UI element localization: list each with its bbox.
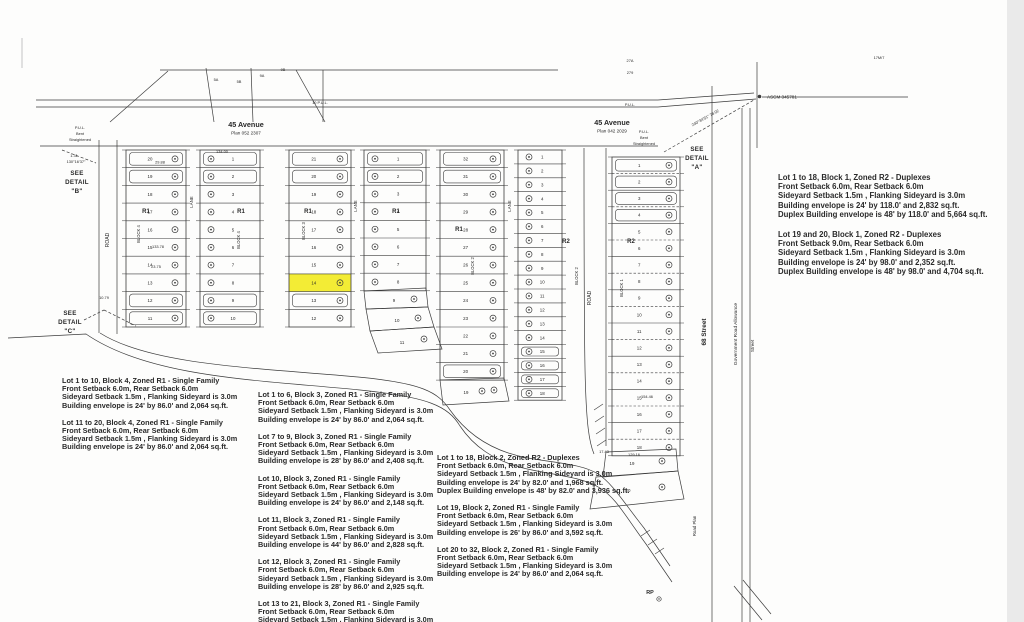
hatch-tick	[596, 428, 605, 434]
survey-marker-dot	[174, 264, 176, 266]
survey-marker-dot	[339, 282, 341, 284]
pul-road-label: P.U.L.	[625, 102, 635, 107]
lot-number: 3	[232, 192, 235, 197]
zoning-note-line: Front Setback 6.0m, Rear Setback 6.0m	[778, 182, 988, 191]
lot-number: 12	[540, 307, 545, 312]
road-line	[296, 70, 325, 122]
see-detail-c-label: SEE	[63, 310, 76, 317]
lot-number: 20	[148, 156, 153, 161]
survey-marker-dot	[413, 298, 415, 300]
road-line	[658, 99, 756, 107]
lot-number: 1	[541, 155, 544, 160]
hatch-tick	[655, 548, 664, 554]
survey-marker-dot	[374, 176, 376, 178]
survey-marker-dot	[210, 158, 212, 160]
survey-marker-dot	[492, 176, 494, 178]
survey-marker-dot	[492, 246, 494, 248]
road-right-label: ROAD	[587, 290, 593, 305]
survey-marker-dot	[210, 282, 212, 284]
survey-marker-dot	[528, 267, 530, 269]
survey-marker-dot	[528, 239, 530, 241]
building-envelope	[616, 160, 677, 172]
lot-number: 22	[463, 333, 468, 338]
survey-marker-dot	[339, 193, 341, 195]
highlighted-lot-14	[289, 274, 351, 292]
lot-column	[608, 157, 684, 456]
hatch-tick	[594, 404, 603, 410]
lot-number: 14	[311, 280, 316, 285]
zoning-note-line: Building envelope is 44' by 86.0' and 2,…	[258, 541, 433, 549]
lot-number: 4	[541, 196, 544, 201]
survey-marker-dot	[668, 164, 670, 166]
lot-number: 11	[540, 294, 545, 299]
pul-road-label: 10 P.U.L.	[312, 100, 328, 105]
zoning-note: Lot 13 to 21, Block 3, Zoned R1 - Single…	[258, 600, 433, 622]
survey-marker-dot	[492, 229, 494, 231]
survey-marker-dot	[174, 211, 176, 213]
angle-label: 130°16'37"	[67, 159, 86, 164]
survey-marker-dot	[668, 364, 670, 366]
survey-marker-dot	[661, 460, 663, 462]
lot-number: 9	[638, 296, 641, 301]
lot-number: 2	[638, 180, 641, 185]
survey-marker-dot	[528, 351, 530, 353]
lot-number: 12	[148, 298, 153, 303]
avenue-left-label: 45 Avenue	[228, 120, 263, 129]
pul-note: Straightened	[69, 137, 91, 142]
lot-column	[285, 150, 355, 327]
lot-number: 10	[231, 316, 236, 321]
survey-marker-dot	[668, 214, 670, 216]
lot-number: 21	[311, 156, 316, 161]
survey-marker-dot	[492, 370, 494, 372]
survey-marker-dot	[492, 300, 494, 302]
zoning-note-line: Building envelope is 24' by 86.0' and 2,…	[62, 402, 237, 410]
block-3-label: BLOCK 3	[301, 221, 306, 239]
zone-r2-label: R2	[562, 239, 570, 245]
survey-marker-dot	[339, 158, 341, 160]
lot-number: 6	[397, 244, 400, 249]
lot-number: 31	[463, 174, 468, 179]
survey-marker-dot	[374, 281, 376, 283]
scan-edge	[1007, 0, 1024, 622]
survey-marker-dot	[528, 281, 530, 283]
survey-marker-dot	[174, 176, 176, 178]
lot-number: 4	[232, 210, 235, 215]
see-detail-b-label: "B"	[71, 188, 82, 195]
lot-number: 18	[540, 391, 545, 396]
lane-label: LANE	[507, 200, 512, 212]
lot-number: 11	[400, 340, 405, 345]
hatch-tick	[595, 416, 604, 422]
lot-number: 18	[637, 445, 642, 450]
lot-number: 8	[638, 279, 641, 284]
road-plan-label: Road Plan	[692, 515, 697, 536]
lot-number: 15	[311, 263, 316, 268]
survey-marker-dot	[174, 300, 176, 302]
monument-dot	[758, 95, 762, 99]
lot-number: 13	[311, 298, 316, 303]
lot-column	[196, 150, 264, 327]
survey-marker-dot	[374, 193, 376, 195]
lot-number: 7	[397, 262, 400, 267]
gov-road-allowance-label: Government Road Allowance	[733, 303, 739, 365]
lot-column	[122, 150, 190, 327]
survey-marker-dot	[668, 297, 670, 299]
survey-marker-dot	[528, 184, 530, 186]
zoning-note-line: Building envelope is 24' by 86.0' and 2,…	[437, 570, 629, 578]
lot-number: 21	[463, 351, 468, 356]
block-1-label: BLOCK 1	[619, 278, 624, 296]
survey-marker-dot	[492, 282, 494, 284]
survey-marker-dot	[174, 158, 176, 160]
dimension-label: 27A	[627, 58, 634, 63]
survey-marker-dot	[668, 264, 670, 266]
pul-note: Bent	[640, 135, 649, 140]
dimension-label: 134.00	[216, 149, 229, 154]
zone-r2-label: R2	[627, 239, 635, 245]
survey-marker-dot	[668, 380, 670, 382]
zoning-note-line: Building envelope is 24' by 86.0' and 2,…	[258, 416, 433, 424]
lot-number: 7	[232, 263, 235, 268]
zoning-note: Lot 7 to 9, Block 3, Zoned R1 - Single F…	[258, 433, 433, 466]
survey-marker-dot	[528, 309, 530, 311]
zoning-note-line: Building envelope is 26' by 86.0' and 3,…	[437, 529, 629, 537]
zoning-note: Lot 11 to 20, Block 4, Zoned R1 - Single…	[62, 419, 237, 452]
lot-number: 14	[540, 335, 545, 340]
lot-number: 10	[540, 280, 545, 285]
survey-marker-dot	[668, 430, 670, 432]
lot-number: 23	[463, 316, 468, 321]
road-line	[734, 586, 762, 620]
pul-note: Bent	[76, 131, 85, 136]
block-4-label: BLOCK 4	[236, 230, 241, 248]
monument-label: ASCM 345781	[767, 95, 797, 100]
lot-number: 26	[463, 263, 468, 268]
survey-marker-dot	[668, 231, 670, 233]
zoning-note: Lot 19, Block 2, Zoned R1 - Single Famil…	[437, 504, 629, 537]
survey-marker-dot	[481, 390, 483, 392]
lot-number: 13	[637, 362, 642, 367]
lot-number: 16	[148, 227, 153, 232]
survey-marker-dot	[339, 300, 341, 302]
block-4-label: BLOCK 4	[136, 224, 141, 242]
dimension-label: 9B	[281, 67, 286, 72]
building-envelope	[616, 193, 677, 205]
survey-marker-dot	[668, 347, 670, 349]
dimension-label: 5B	[237, 79, 242, 84]
lot-number: 9	[541, 266, 544, 271]
survey-marker-dot	[210, 229, 212, 231]
zoning-notes-block3: Lot 1 to 6, Block 3, Zoned R1 - Single F…	[258, 391, 433, 622]
lot-number: 28	[463, 227, 468, 232]
lot-number: 6	[541, 224, 544, 229]
zone-r1-label: R1	[142, 209, 150, 215]
dimension-label: 129.16	[628, 452, 640, 457]
road-line	[110, 71, 168, 122]
zoning-note-line: Duplex Building envelope is 48' by 82.0'…	[437, 487, 629, 495]
see-detail-c-label: "C"	[64, 328, 75, 335]
survey-marker-dot	[210, 176, 212, 178]
building-envelope	[616, 209, 677, 221]
zoning-note-line: Building envelope is 24' by 86.0' and 2,…	[62, 443, 237, 451]
street-68-label: 68 Street	[701, 318, 708, 346]
survey-marker-dot	[174, 193, 176, 195]
zoning-note-line: Duplex Building envelope is 48' by 98.0'…	[778, 267, 988, 276]
zone-r1-label: R1	[304, 209, 312, 215]
road-left-label: ROAD	[105, 232, 111, 247]
survey-marker-dot	[528, 392, 530, 394]
zoning-note: Lot 1 to 6, Block 3, Zoned R1 - Single F…	[258, 391, 433, 424]
see-detail-b-label: DETAIL	[65, 179, 89, 186]
lot-number: 3	[638, 196, 641, 201]
zoning-note: Lot 19 and 20, Block 1, Zoned R2 - Duple…	[778, 230, 988, 276]
survey-marker-dot	[210, 193, 212, 195]
pul-note: P.U.L.	[75, 125, 85, 130]
zoning-note-line: Sideyard Setback 1.5m , Flanking Sideyar…	[258, 616, 433, 622]
dimension-label: 9A	[260, 73, 265, 78]
zone-r1-label: R1	[455, 227, 463, 233]
lot-number: 10	[637, 312, 642, 317]
zoning-note-line: Lot 19 and 20, Block 1, Zoned R2 - Duple…	[778, 230, 988, 239]
survey-marker-dot	[339, 264, 341, 266]
survey-marker-dot	[493, 389, 495, 391]
zoning-note-line: Building envelope is 28' by 86.0' and 2,…	[258, 583, 433, 591]
survey-marker-dot	[339, 317, 341, 319]
zoning-note: Lot 1 to 18, Block 2, Zoned R2 - Duplexe…	[437, 454, 629, 495]
lot-number: 5	[541, 210, 544, 215]
angled-lot	[440, 378, 509, 405]
lot-number: 18	[311, 210, 316, 215]
lot-number: 1	[397, 156, 400, 161]
lot-number: 8	[541, 252, 544, 257]
survey-marker-dot	[210, 300, 212, 302]
lot-number: 19	[630, 461, 635, 466]
lot-number: 24	[463, 298, 468, 303]
lot-number: 6	[232, 245, 235, 250]
survey-marker-dot	[668, 181, 670, 183]
survey-marker-dot	[492, 353, 494, 355]
lot-number: 16	[540, 363, 545, 368]
survey-marker-dot	[492, 264, 494, 266]
lot-number: 15	[540, 349, 545, 354]
lot-number: 16	[311, 245, 316, 250]
zoning-note: Lot 11, Block 3, Zoned R1 - Single Famil…	[258, 516, 433, 549]
dimension-label: 133.78	[152, 244, 164, 249]
survey-marker-dot	[374, 211, 376, 213]
lot-number: 13	[148, 280, 153, 285]
lot-number: 5	[397, 227, 400, 232]
dimension-label: 154.46	[641, 394, 653, 399]
building-envelope	[616, 176, 677, 188]
block-2-label: BLOCK 2	[574, 266, 579, 284]
survey-marker-dot	[374, 264, 376, 266]
lot-number: 8	[397, 280, 400, 285]
lot-number: 20	[311, 174, 316, 179]
see-detail-b-label: SEE	[70, 170, 83, 177]
pul-note: P.U.L.	[639, 129, 649, 134]
survey-marker-dot	[528, 365, 530, 367]
survey-marker-dot	[661, 486, 663, 488]
lot-number: 19	[311, 192, 316, 197]
lot-number: 2	[232, 174, 235, 179]
survey-marker-dot	[668, 314, 670, 316]
lot-column	[360, 150, 430, 291]
survey-marker-dot	[668, 413, 670, 415]
survey-marker-dot	[174, 282, 176, 284]
dimension-label: 29.88	[155, 160, 165, 165]
survey-marker-dot	[210, 317, 212, 319]
lot-number: 2	[397, 174, 400, 179]
lot-number: 10	[395, 318, 400, 323]
lot-number: 6	[638, 246, 641, 251]
lot-number: 8	[232, 280, 235, 285]
zoning-note-line: Building envelope is 24' by 86.0' and 2,…	[258, 499, 433, 507]
lot-number: 25	[463, 280, 468, 285]
survey-marker-dot	[668, 247, 670, 249]
survey-marker-dot	[528, 295, 530, 297]
survey-marker-dot	[417, 317, 419, 319]
lot-number: 9	[232, 298, 235, 303]
lot-number: 14	[637, 379, 642, 384]
survey-marker-dot	[210, 246, 212, 248]
road-line	[743, 580, 771, 614]
survey-marker-dot	[423, 338, 425, 340]
road-line	[658, 93, 754, 100]
hatch-tick	[597, 440, 606, 446]
survey-marker-dot	[339, 246, 341, 248]
survey-marker-dot	[492, 193, 494, 195]
lot-number: 12	[311, 316, 316, 321]
zone-r1-label: R1	[392, 209, 400, 215]
zoning-notes-block1: Lot 1 to 18, Block 1, Zoned R2 - Duplexe…	[778, 173, 988, 287]
avenue-left-plan: Plan 052 2307	[231, 131, 261, 136]
dimension-label: 17M/7	[874, 55, 885, 60]
lot-number: 17	[540, 377, 545, 382]
survey-marker-dot	[528, 170, 530, 172]
dimension-label: 279	[627, 70, 634, 75]
survey-marker-dot	[528, 323, 530, 325]
survey-marker-dot	[374, 228, 376, 230]
lot-number: 30	[463, 192, 468, 197]
detail-leader-line	[664, 100, 754, 152]
survey-marker-dot	[668, 198, 670, 200]
lot-number: 11	[637, 329, 642, 334]
zoning-note-line: Lot 1 to 18, Block 1, Zoned R2 - Duplexe…	[778, 173, 988, 182]
zoning-note-line: Sideyard Setback 1.5m , Flanking Sideyar…	[778, 248, 988, 257]
zoning-note-line: Duplex Building envelope is 48' by 118.0…	[778, 210, 988, 219]
detail-leader-line	[104, 310, 136, 326]
zoning-note: Lot 1 to 10, Block 4, Zoned R1 - Single …	[62, 377, 237, 410]
zoning-note: Lot 20 to 32, Block 2, Zoned R1 - Single…	[437, 546, 629, 579]
lot-number: 17	[311, 227, 316, 232]
survey-marker-dot	[528, 226, 530, 228]
detail-leader-line	[84, 310, 104, 320]
zoning-note: Lot 10, Block 3, Zoned R1 - Single Famil…	[258, 475, 433, 508]
survey-marker-dot	[174, 317, 176, 319]
survey-marker-dot	[668, 330, 670, 332]
zoning-note-line: Building envelope is 24' by 98.0' and 2,…	[778, 258, 988, 267]
zoning-note-line: Building envelope is 28' by 86.0' and 2,…	[258, 457, 433, 465]
angle-label: 1.31	[70, 153, 78, 158]
lane-label: LANE	[353, 200, 358, 212]
lot-number: 5	[638, 229, 641, 234]
dimension-label: 23.75	[151, 264, 161, 269]
see-detail-c-label: DETAIL	[58, 319, 82, 326]
zoning-note: Lot 1 to 18, Block 1, Zoned R2 - Duplexe…	[778, 173, 988, 219]
see-detail-a-label: SEE	[690, 146, 703, 153]
lot-number: 13	[540, 321, 545, 326]
lot-number: 2	[541, 168, 544, 173]
lot-number: 19	[148, 174, 153, 179]
lot-number: 29	[463, 210, 468, 215]
lot-number: 1	[232, 156, 235, 161]
survey-marker-dot	[668, 447, 670, 449]
survey-marker-dot	[210, 264, 212, 266]
block-2-label: BLOCK 2	[470, 256, 475, 274]
zoning-note-line: Sideyard Setback 1.5m , Flanking Sideyar…	[778, 191, 988, 200]
survey-marker-dot	[174, 246, 176, 248]
zoning-note: Lot 12, Block 3, Zoned R1 - Single Famil…	[258, 558, 433, 591]
zone-r1-label: R1	[237, 209, 245, 215]
survey-marker-dot	[174, 229, 176, 231]
lot-number: 4	[638, 213, 641, 218]
lot-number: 7	[638, 263, 641, 268]
survey-marker-dot	[528, 337, 530, 339]
survey-marker-dot	[492, 158, 494, 160]
building-envelope	[444, 170, 501, 183]
zoning-notes-block4: Lot 1 to 10, Block 4, Zoned R1 - Single …	[62, 377, 237, 461]
angled-lot	[370, 327, 442, 353]
survey-marker-dot	[528, 253, 530, 255]
avenue-right-label: 45 Avenue	[594, 118, 629, 127]
lot-number: 27	[463, 245, 468, 250]
survey-marker-dot	[339, 229, 341, 231]
plat-map-scan: 2019181716151413121112345678910212019181…	[0, 0, 1024, 622]
lot-number: 5	[232, 227, 235, 232]
lot-number: 12	[637, 346, 642, 351]
survey-marker-dot	[339, 176, 341, 178]
avenue-right-plan: Plan 042 2029	[597, 129, 627, 134]
lot-number: 1	[638, 163, 641, 168]
survey-marker-dot	[528, 198, 530, 200]
survey-marker-dot	[668, 281, 670, 283]
survey-marker-dot	[210, 211, 212, 213]
survey-marker-dot	[374, 158, 376, 160]
see-detail-a-label: DETAIL	[685, 155, 709, 162]
survey-marker-dot	[492, 211, 494, 213]
rp-marker-dot	[658, 598, 659, 599]
lot-number: 9	[393, 298, 396, 303]
lot-number: 16	[637, 412, 642, 417]
road-line	[251, 68, 253, 122]
lot-number: 20	[463, 369, 468, 374]
survey-marker-dot	[339, 211, 341, 213]
lot-number: 3	[541, 182, 544, 187]
survey-marker-dot	[528, 378, 530, 380]
zoning-notes-block2: Lot 1 to 18, Block 2, Zoned R2 - Duplexe…	[437, 454, 629, 588]
street-small-label: Street	[750, 339, 755, 352]
lot-number: 17	[637, 429, 642, 434]
lot-number: 18	[148, 192, 153, 197]
survey-marker-dot	[528, 212, 530, 214]
lot-number: 32	[463, 156, 468, 161]
zoning-note-line: Front Setback 9.0m, Rear Setback 6.0m	[778, 239, 988, 248]
building-envelope	[444, 153, 501, 166]
building-envelope	[444, 365, 501, 378]
survey-marker-dot	[492, 335, 494, 337]
survey-marker-dot	[374, 246, 376, 248]
